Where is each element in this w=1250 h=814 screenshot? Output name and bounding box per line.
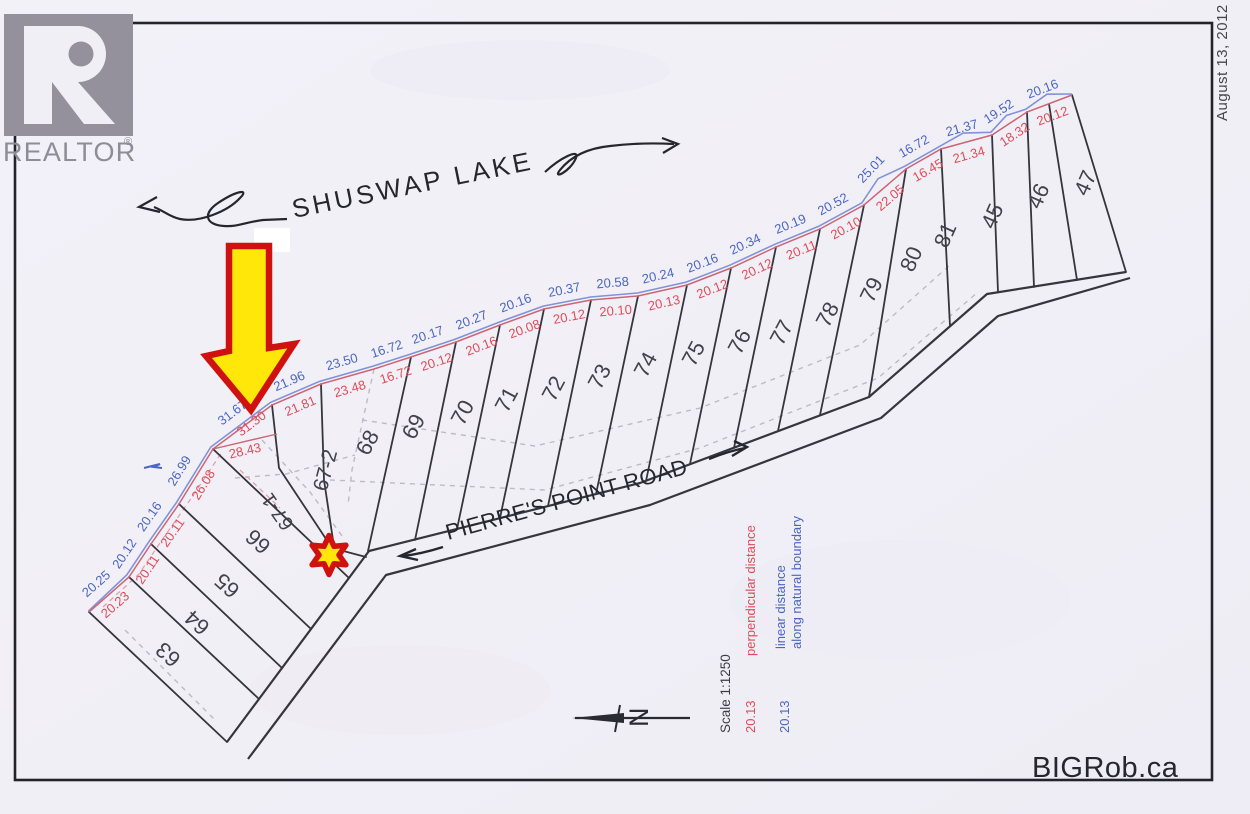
svg-text:linear distance: linear distance bbox=[773, 565, 788, 649]
svg-text:20.13: 20.13 bbox=[777, 700, 792, 733]
svg-text:Scale 1:1250: Scale 1:1250 bbox=[718, 654, 733, 733]
svg-text:N: N bbox=[624, 708, 654, 728]
svg-text:REALTOR: REALTOR bbox=[3, 137, 136, 167]
svg-text:20.10: 20.10 bbox=[599, 302, 633, 320]
svg-text:perpendicular distance: perpendicular distance bbox=[743, 525, 758, 656]
svg-text:20.58: 20.58 bbox=[596, 274, 630, 292]
svg-text:BIGRob.ca: BIGRob.ca bbox=[1032, 752, 1179, 784]
svg-text:®: ® bbox=[124, 136, 132, 148]
svg-text:along natural boundary: along natural boundary bbox=[789, 516, 804, 649]
svg-text:20.13: 20.13 bbox=[743, 700, 758, 733]
svg-text:August 13, 2012: August 13, 2012 bbox=[1214, 4, 1231, 121]
